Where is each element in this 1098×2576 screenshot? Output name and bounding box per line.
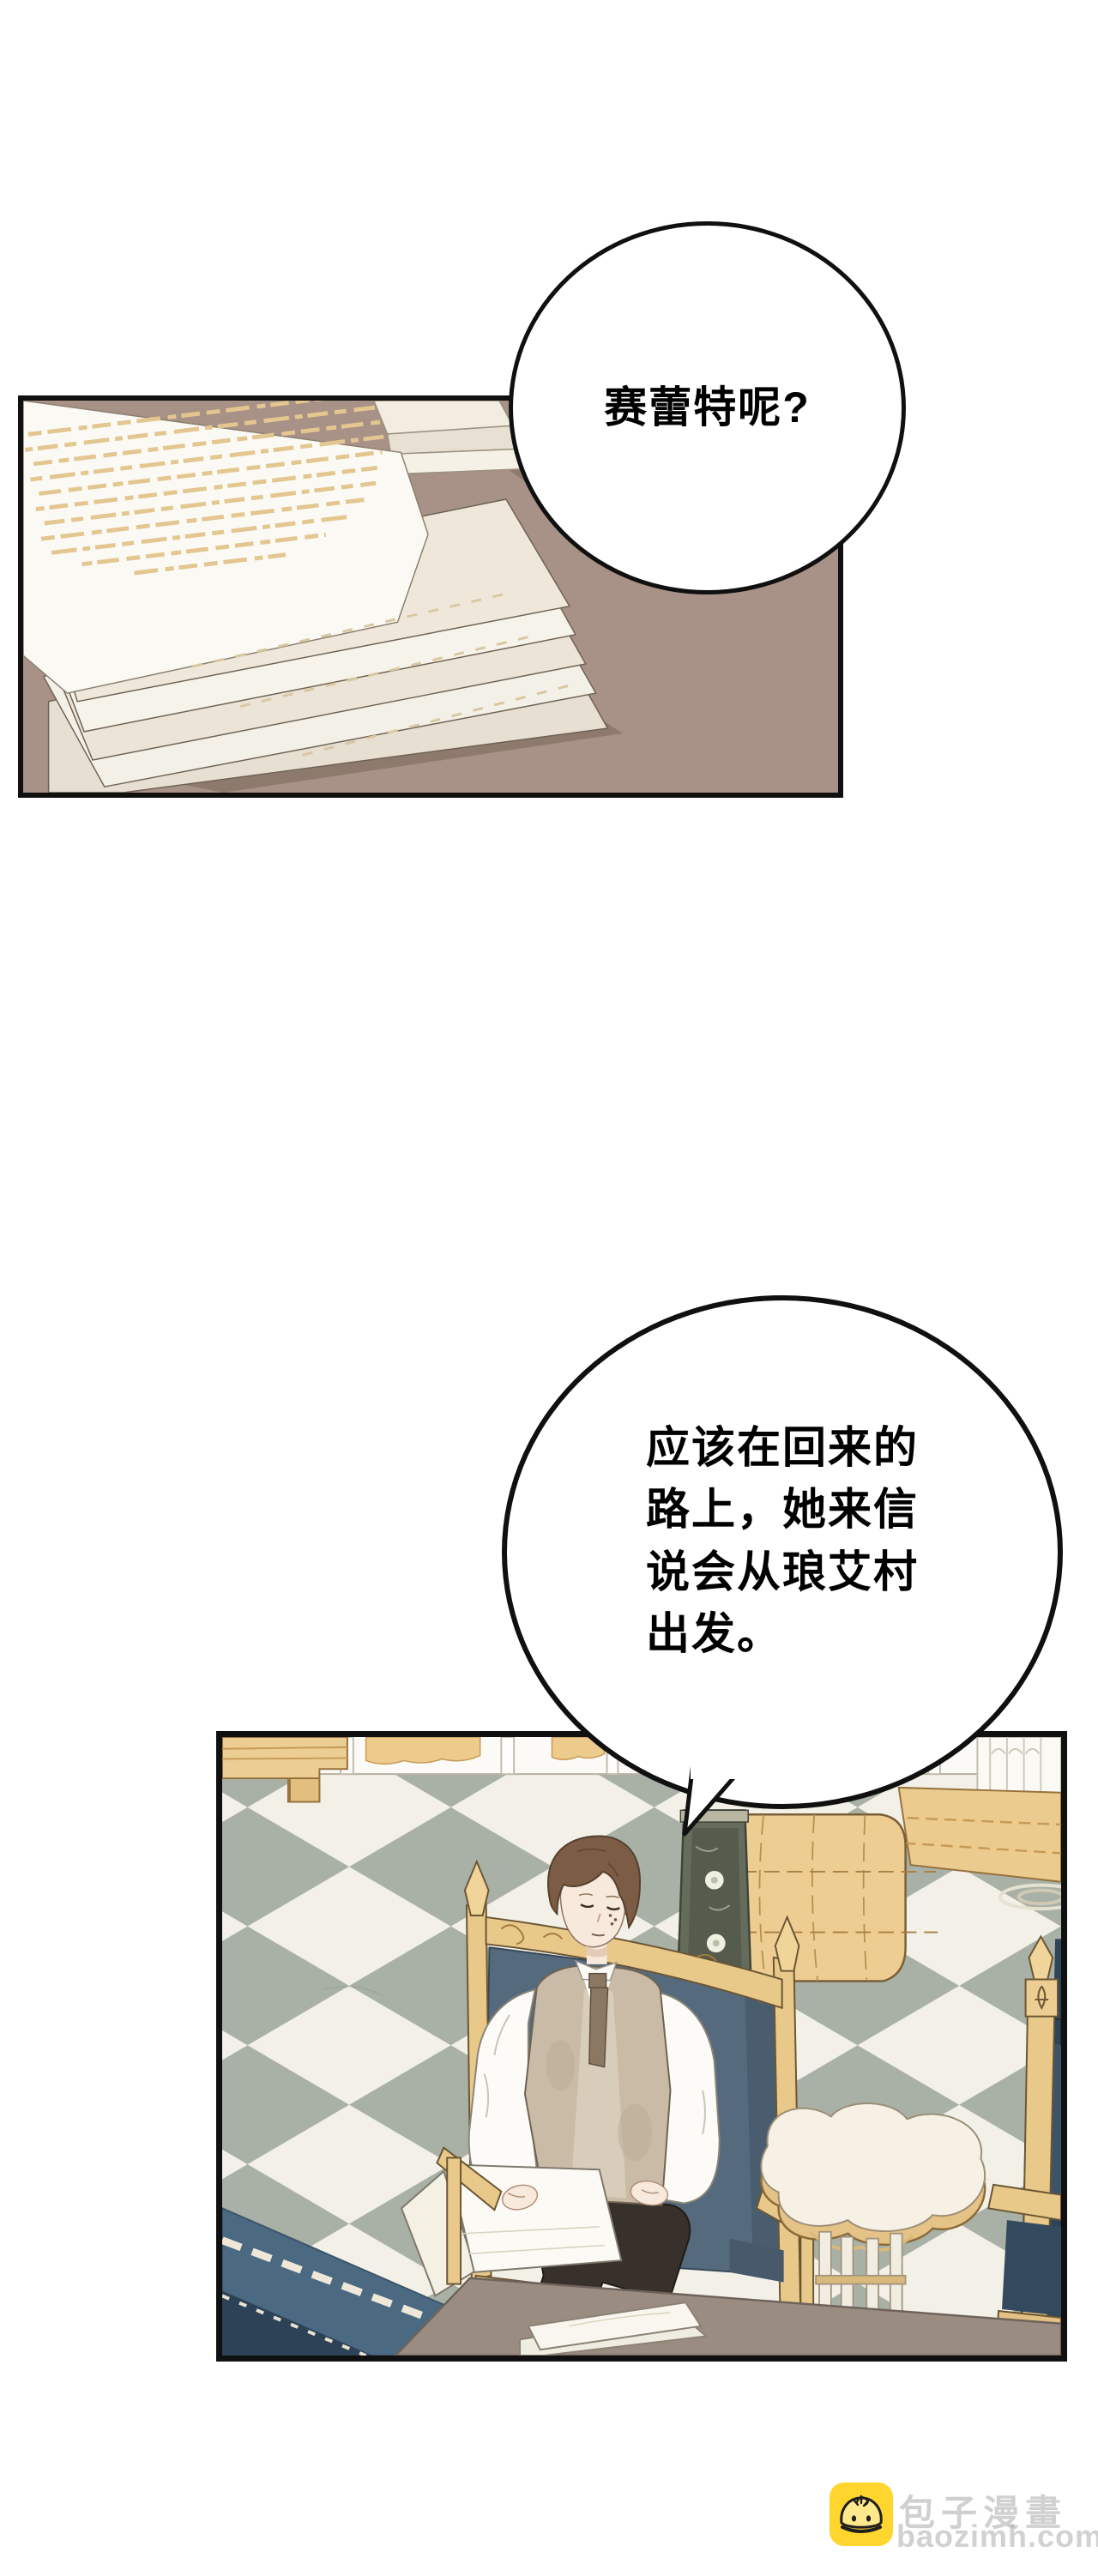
speech-bubble-tail [669, 1733, 823, 1844]
right-chair-emblem [1026, 1980, 1058, 2017]
palace-scene [222, 1737, 1061, 2356]
table-top [761, 2103, 985, 2231]
tie-knot [589, 1974, 606, 1988]
baozi-bun-icon [830, 2482, 893, 2546]
arcade-column [977, 1737, 1061, 1798]
speech-text-2: 应该在回来的 路上，她来信 说会从琅艾村 出发。 [646, 1417, 919, 1666]
comic-page: 赛蕾特呢? 应该在回来的 路上，她来信 说会从琅艾村 出发。 包子漫畫 baoz… [0, 0, 1098, 2576]
watermark-url: baozimh.com [896, 2519, 1098, 2555]
speech-text-1: 赛蕾特呢? [604, 377, 811, 438]
speech-bubble-1: 赛蕾特呢? [509, 221, 906, 594]
right-chair-cushion [1002, 2220, 1061, 2316]
panel-palace-room [216, 1731, 1067, 2362]
tie [589, 1988, 608, 2066]
